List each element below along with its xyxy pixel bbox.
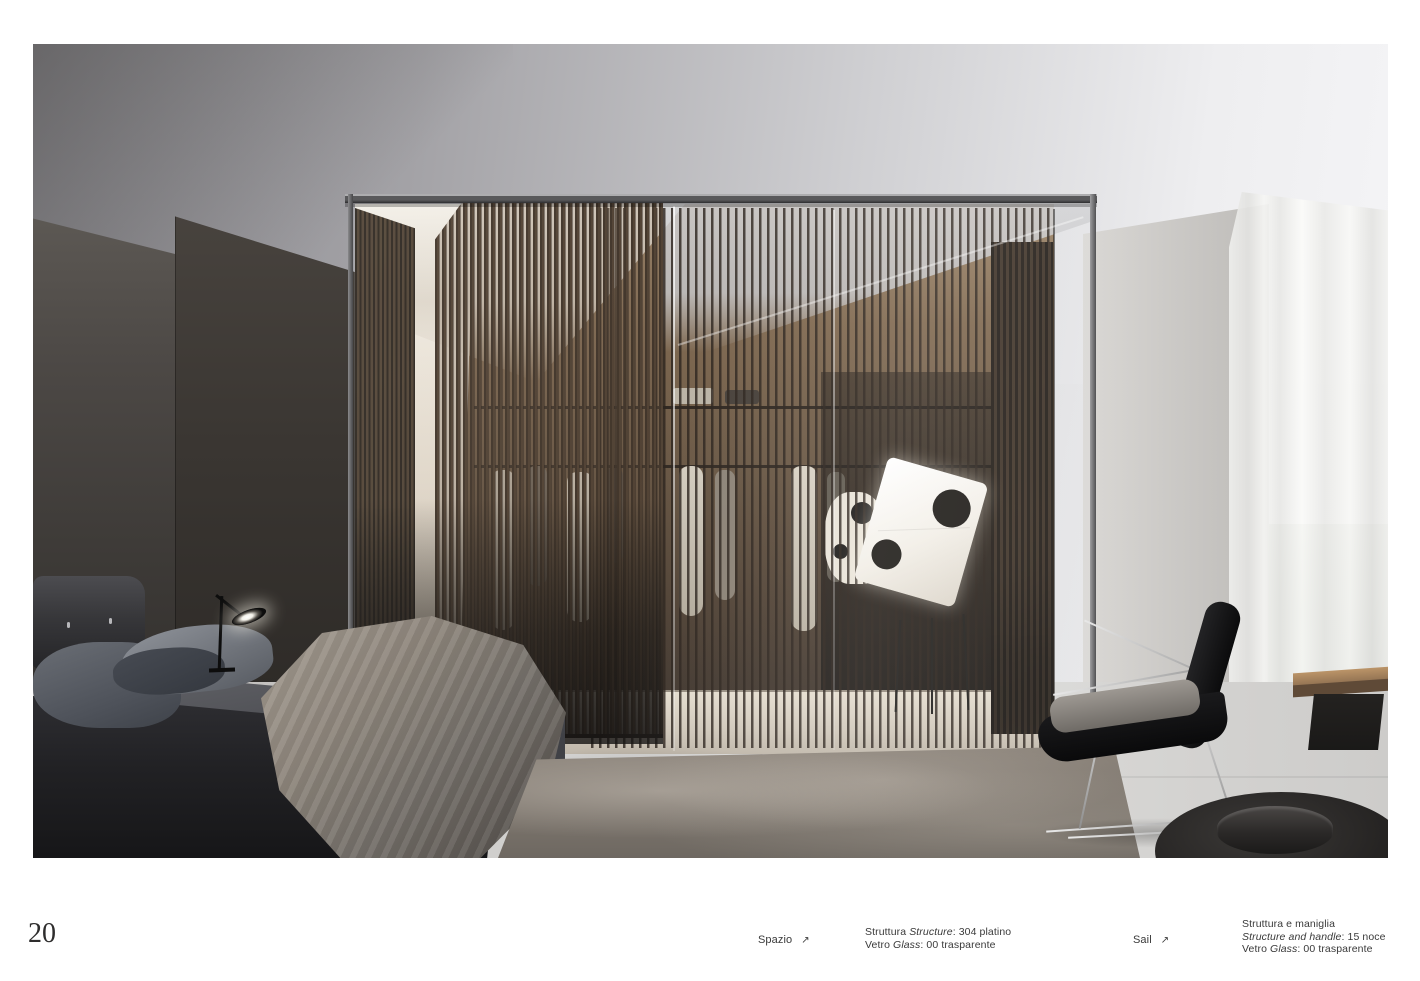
- closet-track-shadow: [345, 203, 1097, 207]
- catalog-page: 20 Spazio↗ Struttura Structure: 304 plat…: [0, 0, 1420, 981]
- headboard-button: [109, 618, 112, 624]
- product-name: Spazio: [758, 934, 792, 946]
- spec-text: : 00 trasparente: [920, 939, 995, 951]
- spec-line: Vetro Glass: 00 trasparente: [865, 939, 1011, 952]
- floor-lamp-stem: [218, 596, 224, 670]
- closet-top-track: [345, 194, 1097, 203]
- spec-text-italic: Glass: [893, 939, 920, 951]
- product-name: Sail: [1133, 934, 1152, 946]
- caption-sail: Sail↗: [1133, 934, 1169, 946]
- spec-line: Vetro Glass: 00 trasparente: [1242, 943, 1386, 956]
- spec-text: : 304 platino: [953, 926, 1012, 938]
- bedroom-photo: [33, 44, 1388, 858]
- spec-line: Structure and handle: 15 noce: [1242, 931, 1386, 944]
- spec-spazio: Struttura Structure: 304 platino Vetro G…: [865, 926, 1011, 951]
- spec-text: Struttura e maniglia: [1242, 918, 1335, 930]
- arrow-up-right-icon: ↗: [801, 935, 809, 946]
- bench-support: [1308, 694, 1384, 750]
- spec-text-italic: Structure and handle: [1242, 931, 1341, 943]
- spec-text-italic: Structure: [909, 926, 953, 938]
- table-bowl: [1217, 806, 1333, 854]
- spec-text-italic: Glass: [1270, 943, 1297, 955]
- glass-edge-highlight: [833, 210, 835, 750]
- spec-text: Struttura: [865, 926, 909, 938]
- floor-lamp: [161, 544, 276, 684]
- spec-text: : 15 noce: [1341, 931, 1385, 943]
- spec-sail: Struttura e maniglia Structure and handl…: [1242, 918, 1386, 956]
- headboard-button: [67, 622, 70, 628]
- caption-spazio: Spazio↗: [758, 934, 810, 946]
- spec-line: Struttura Structure: 304 platino: [865, 926, 1011, 939]
- wood-bench: [1293, 664, 1388, 760]
- arrow-up-right-icon: ↗: [1161, 935, 1169, 946]
- glass-edge-highlight: [673, 206, 675, 751]
- spec-line: Struttura e maniglia: [1242, 918, 1386, 931]
- page-number: 20: [28, 918, 56, 950]
- floor-lamp-base: [209, 668, 235, 673]
- spec-text: Vetro: [1242, 943, 1270, 955]
- spec-text: : 00 trasparente: [1297, 943, 1372, 955]
- spec-text: Vetro: [865, 939, 893, 951]
